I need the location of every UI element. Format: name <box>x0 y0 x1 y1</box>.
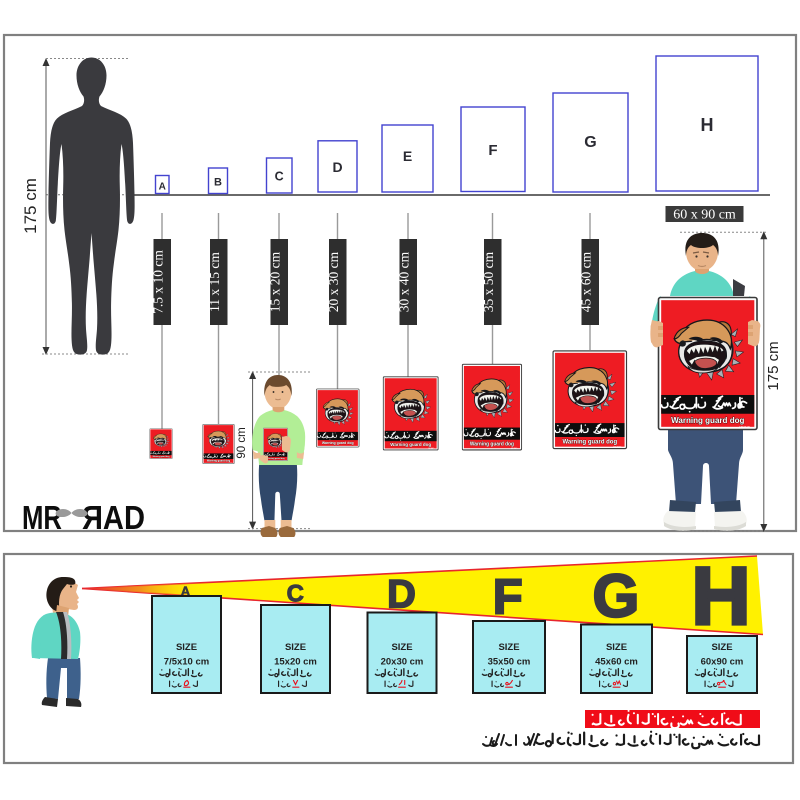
svg-text:C: C <box>287 581 304 608</box>
svg-text:G: G <box>584 134 596 151</box>
svg-text:15 x 20 cm: 15 x 20 cm <box>268 251 283 312</box>
svg-text:15x20 cm: 15x20 cm <box>274 657 317 668</box>
svg-text:B: B <box>214 177 222 189</box>
svg-text:G: G <box>593 563 640 630</box>
svg-text:60x90 cm: 60x90 cm <box>701 657 744 668</box>
svg-text:7.5 x 10 cm: 7.5 x 10 cm <box>151 250 166 314</box>
svg-text:35 x 50 cm: 35 x 50 cm <box>481 251 496 312</box>
svg-text:H: H <box>701 115 714 135</box>
svg-text:F: F <box>488 142 497 159</box>
svg-text:SIZE: SIZE <box>285 642 306 653</box>
svg-text:SIZE: SIZE <box>391 642 412 653</box>
svg-text:90 cm: 90 cm <box>236 427 248 458</box>
svg-text:45x60 cm: 45x60 cm <box>595 657 638 668</box>
svg-text:ЯAD: ЯAD <box>82 499 145 536</box>
svg-text:11 x 15 cm: 11 x 15 cm <box>207 252 222 312</box>
svg-text:D: D <box>332 159 342 175</box>
svg-text:MR: MR <box>22 499 62 536</box>
svg-text:SIZE: SIZE <box>498 642 519 653</box>
svg-text:D: D <box>387 572 416 616</box>
svg-text:SIZE: SIZE <box>711 642 732 653</box>
svg-text:175 cm: 175 cm <box>765 341 782 390</box>
svg-text:F: F <box>493 571 523 625</box>
svg-text:60 x 90 cm: 60 x 90 cm <box>673 208 736 223</box>
svg-text:20 x 30 cm: 20 x 30 cm <box>326 251 341 312</box>
svg-text:20x30 cm: 20x30 cm <box>381 657 424 668</box>
svg-text:SIZE: SIZE <box>176 642 197 653</box>
svg-text:175 cm: 175 cm <box>21 178 40 234</box>
svg-text:45 x 60 cm: 45 x 60 cm <box>579 251 594 312</box>
svg-text:SIZE: SIZE <box>606 642 627 653</box>
svg-text:E: E <box>403 148 412 164</box>
svg-text:A: A <box>159 182 166 193</box>
svg-text:35x50 cm: 35x50 cm <box>488 657 531 668</box>
svg-text:7/5x10 cm: 7/5x10 cm <box>164 657 209 668</box>
svg-text:C: C <box>275 170 284 184</box>
svg-text:30 x 40 cm: 30 x 40 cm <box>397 251 412 312</box>
svg-text:H: H <box>691 551 750 642</box>
